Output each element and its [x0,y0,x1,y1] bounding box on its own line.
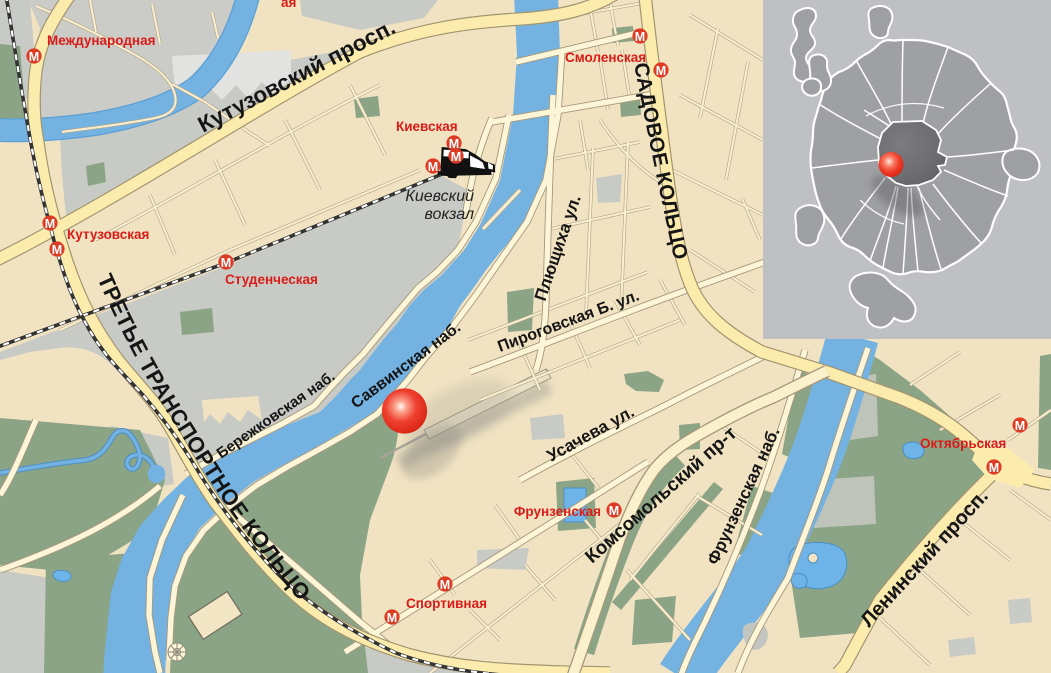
svg-text:Октябрьская: Октябрьская [920,436,1006,451]
svg-text:Студенческая: Студенческая [225,272,318,287]
svg-text:М: М [29,50,39,64]
svg-text:Международная: Международная [47,33,155,48]
svg-text:Спортивная: Спортивная [406,596,487,611]
svg-text:М: М [635,30,645,44]
svg-text:М: М [656,64,666,78]
svg-text:М: М [387,611,397,625]
svg-text:М: М [52,243,62,257]
svg-text:ая: ая [281,0,296,10]
svg-text:Смоленская: Смоленская [565,50,646,65]
svg-text:М: М [609,504,619,518]
svg-text:М: М [451,150,461,164]
svg-text:М: М [440,578,450,592]
svg-text:Кутузовская: Кутузовская [67,227,149,242]
svg-text:М: М [989,461,999,475]
svg-text:М: М [428,160,438,174]
svg-text:вокзал: вокзал [425,206,474,223]
svg-text:Киевская: Киевская [396,119,458,134]
svg-text:Киевский: Киевский [405,188,474,205]
svg-text:М: М [221,256,231,270]
svg-text:М: М [45,217,55,231]
svg-text:М: М [1015,419,1025,433]
svg-text:Фрунзенская: Фрунзенская [514,504,601,519]
